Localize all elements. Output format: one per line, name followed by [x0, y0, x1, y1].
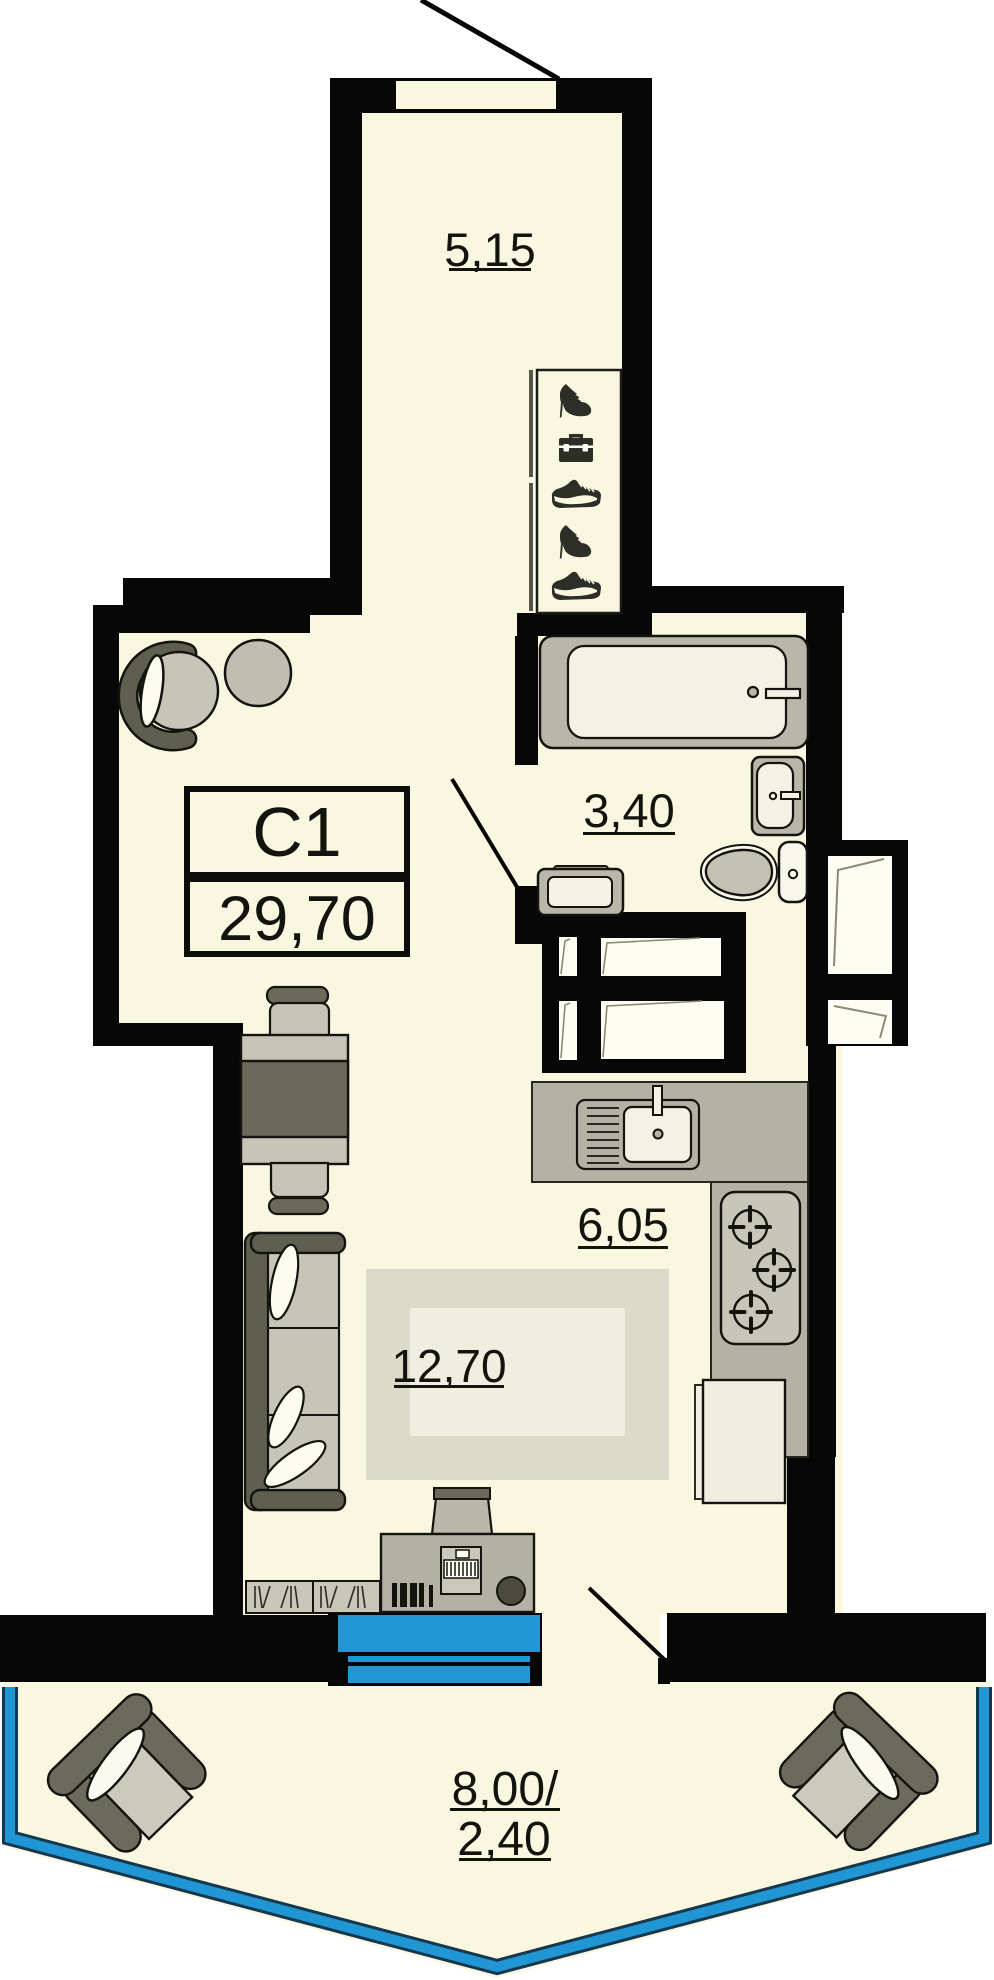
svg-text:6,05: 6,05: [577, 1198, 668, 1251]
svg-text:12,70: 12,70: [391, 1340, 506, 1392]
svg-text:С1: С1: [252, 793, 341, 871]
svg-text:29,70: 29,70: [218, 884, 376, 954]
svg-text:3,40: 3,40: [583, 784, 674, 837]
